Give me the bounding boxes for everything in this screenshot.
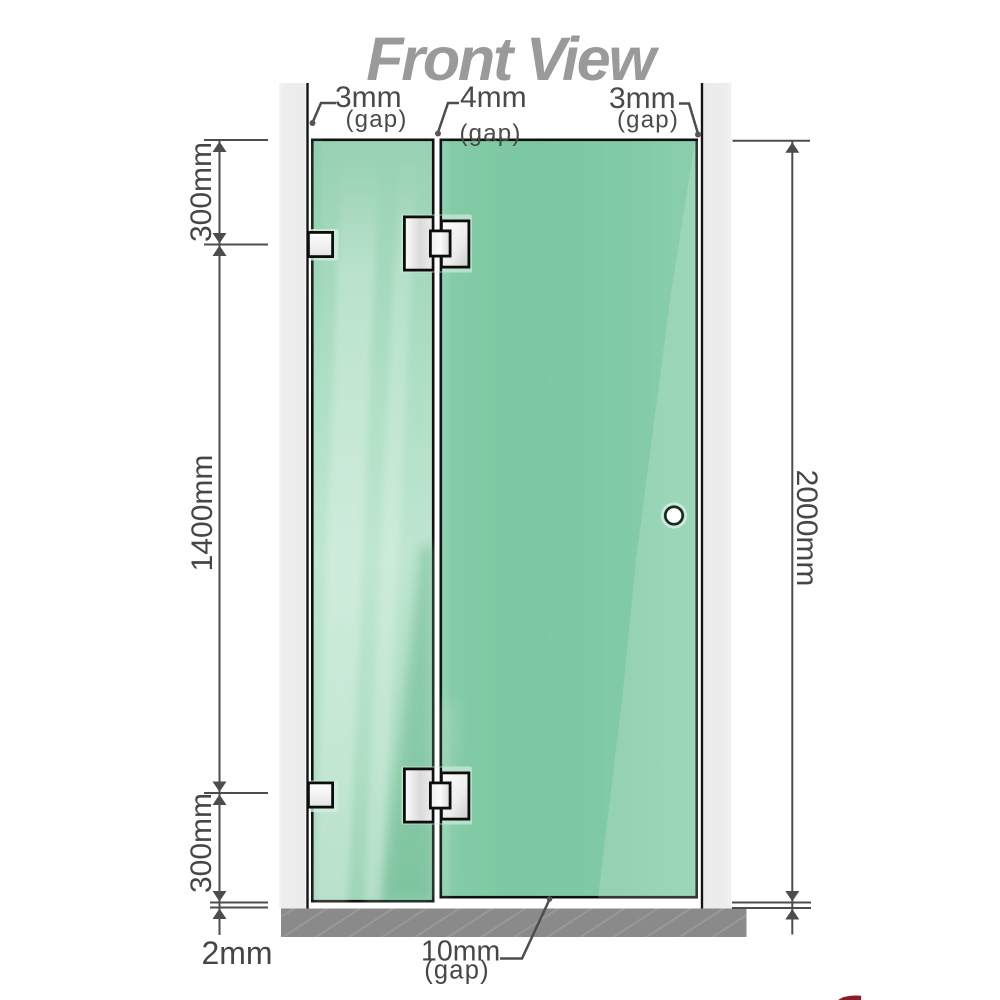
svg-text:2000mm: 2000mm <box>790 470 823 587</box>
svg-text:(gap): (gap) <box>459 120 521 147</box>
svg-text:300mm: 300mm <box>185 793 218 893</box>
svg-text:(gap): (gap) <box>617 107 679 134</box>
svg-text:2mm: 2mm <box>201 935 272 971</box>
svg-text:1400mm: 1400mm <box>186 455 219 572</box>
svg-text:300mm: 300mm <box>185 142 218 242</box>
svg-text:4mm: 4mm <box>460 81 527 114</box>
svg-text:(gap): (gap) <box>424 957 490 985</box>
svg-text:(gap): (gap) <box>345 106 407 133</box>
